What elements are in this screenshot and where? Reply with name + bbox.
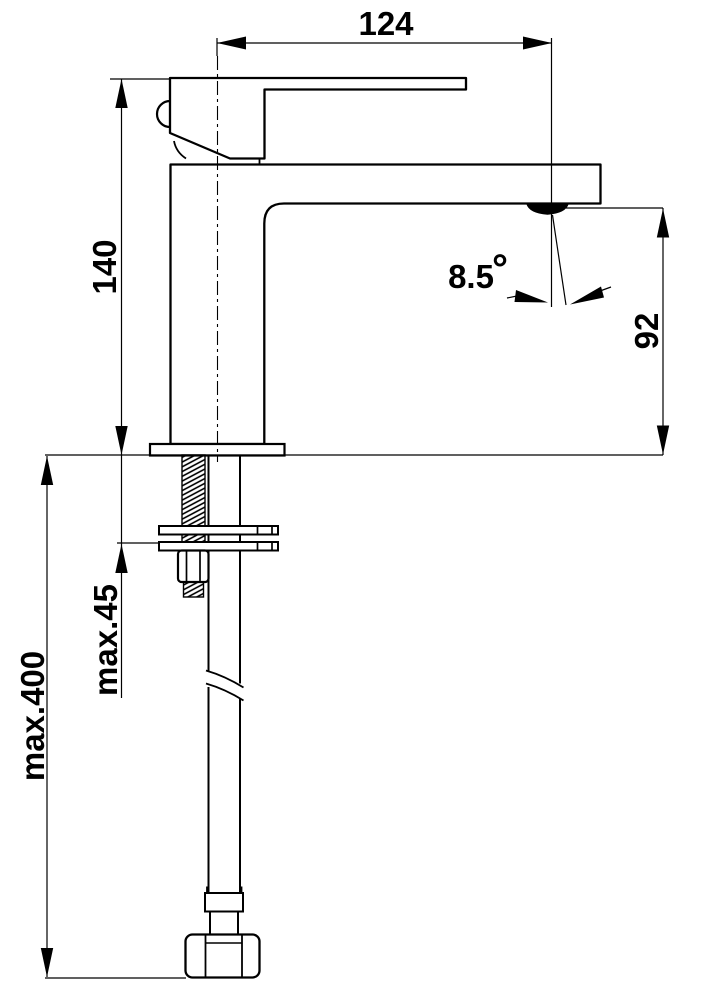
handle-side-bulge [157, 101, 170, 127]
horseshoe-washer-upper [159, 526, 278, 535]
arrow-up-icon [657, 209, 669, 238]
arrow-up-icon [41, 456, 53, 485]
hose-connector-neck [210, 912, 238, 935]
dim-label-92: 92 [628, 313, 665, 350]
faucet-handle [170, 78, 466, 159]
arrow-right-icon [523, 37, 552, 50]
arrow-down-icon [657, 426, 669, 455]
mounting-nut [178, 551, 209, 583]
horseshoe-washer-lower [159, 542, 278, 551]
hose-connector-hex-nut [186, 935, 260, 978]
angle-arrow-left-icon [515, 290, 549, 303]
hose-break-symbol [206, 671, 244, 701]
dim-label-140: 140 [86, 239, 123, 294]
arrow-down-icon [41, 948, 53, 977]
dim-label-angle-unit: ° [492, 247, 508, 291]
handle-skirt-curve [174, 141, 186, 159]
dim-label-124: 124 [358, 5, 414, 42]
dimension-spout-angle: 8.5 ° [448, 215, 611, 305]
dimension-max-mounting-thickness: max.45 [87, 543, 159, 696]
technical-drawing-canvas: 124 140 max.45 92 max.400 8.5 ° [0, 0, 706, 1000]
aerator-outlet [527, 204, 568, 215]
arrow-down-icon [115, 426, 127, 455]
supply-hose [209, 455, 241, 888]
faucet-dimension-drawing: 124 140 max.45 92 max.400 8.5 ° [0, 0, 706, 1000]
hose-connector-collar [205, 893, 243, 912]
arrow-left-icon [217, 37, 246, 50]
arrow-up-icon [115, 544, 127, 573]
dim-label-max45: max.45 [87, 584, 124, 696]
dim-label-max400: max.400 [14, 651, 51, 781]
angle-arrow-right-icon [570, 287, 604, 305]
dimension-max-hose-length: max.400 [14, 456, 53, 977]
dimension-outlet-height: 92 [566, 208, 669, 455]
arrow-up-icon [115, 79, 127, 108]
dim-label-angle: 8.5 [448, 258, 494, 295]
